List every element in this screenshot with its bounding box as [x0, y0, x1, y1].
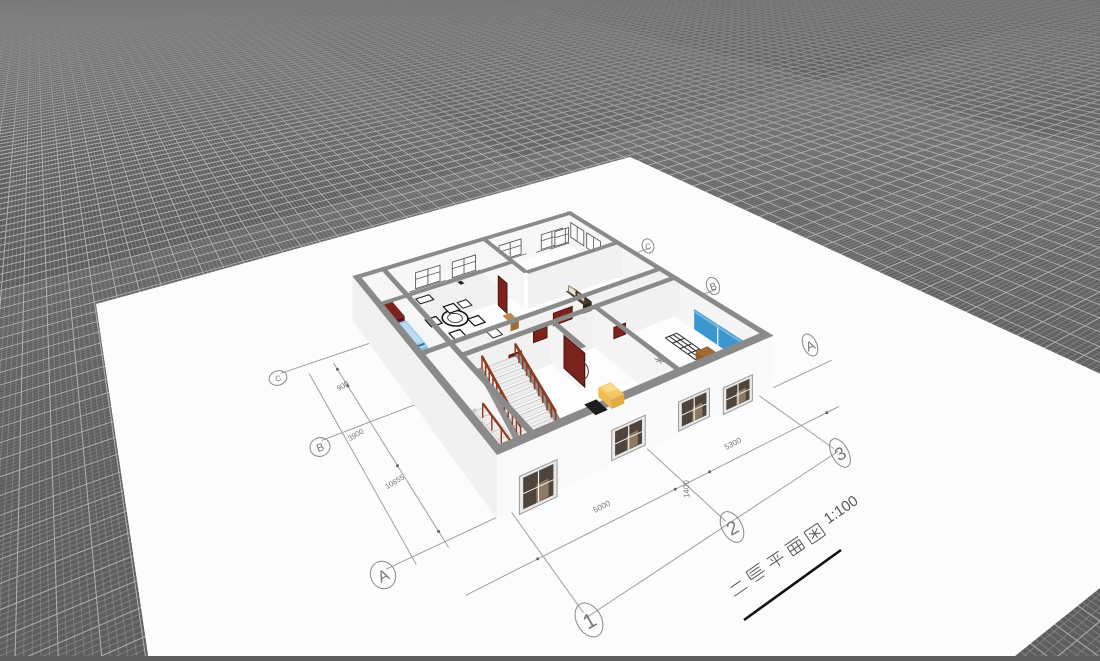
svg-text:1400: 1400 — [682, 479, 692, 498]
